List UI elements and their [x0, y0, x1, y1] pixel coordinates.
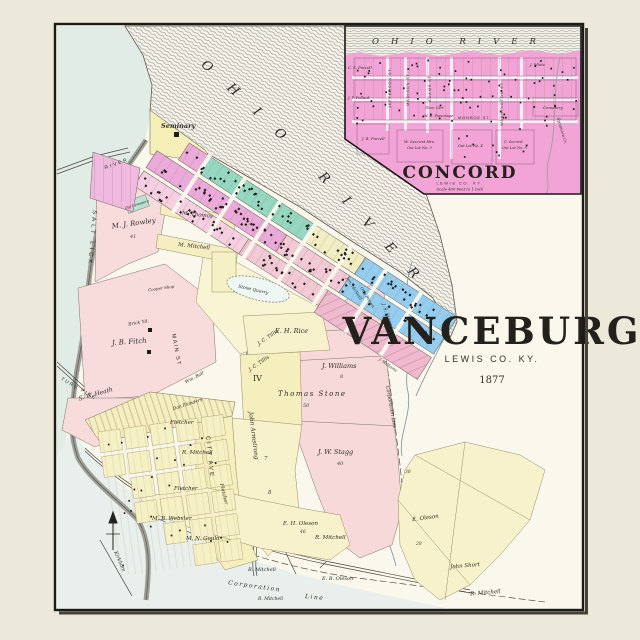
label-oleson-eb: E. B. Oleson — [321, 576, 353, 582]
map-title: VANCEBURG — [342, 309, 640, 353]
label-madison-st: MADISON ST. — [405, 72, 410, 106]
label-carr: Thos. Carr — [425, 106, 444, 110]
label-mitchell-r2: R. Mitchell — [314, 535, 346, 541]
label-outlot5: Out Lot No. 5 — [502, 146, 528, 150]
label-rice: E. H. Rice — [274, 327, 308, 335]
label-williams: J. Williams — [320, 362, 357, 370]
inset-subtitle: LEWIS CO. KY. — [436, 181, 483, 186]
label-fletcher1: Fletcher — [169, 420, 194, 426]
label-n50: 50 — [303, 403, 310, 409]
label-monroe-st: MONROE ST. — [458, 115, 491, 120]
seminary-building — [174, 132, 179, 137]
label-outlot3: Out Lot No. 3 — [407, 146, 433, 150]
label-outlot4: Out Lot No. 4 — [458, 144, 484, 148]
label-n40: 40 — [336, 461, 344, 467]
label-fletcher2: Fletcher — [173, 486, 198, 492]
label-n8b: 8 — [268, 490, 272, 496]
label-gould: M. N. Gould — [185, 536, 220, 542]
label-cemetery: Cemetery — [543, 105, 563, 110]
label-white: J. White — [529, 62, 546, 67]
label-jefferson-st: JEFFERSON ST. — [387, 67, 392, 108]
fitch-house — [147, 350, 151, 354]
inset-river-text: OHIO RIVER — [372, 37, 548, 47]
label-adams-st: ADAMS ST. — [427, 74, 432, 102]
label-oleson-eh: E. H. Oleson — [282, 521, 318, 527]
label-stone: Thomas Stone — [278, 390, 347, 398]
label-w-secrest: W. Secrest Hrs. — [404, 139, 435, 144]
label-n41: 41 — [129, 234, 136, 240]
label-n8: 8 — [340, 374, 343, 380]
label-c-secrest: C. Secrest — [504, 140, 523, 144]
label-n46: 46 — [299, 529, 306, 535]
brick-yard-mark — [148, 328, 152, 332]
label-n7: 7 — [264, 456, 268, 462]
label-n38: 38 — [405, 469, 411, 475]
vanceburg-map-svg: OHIO RIVER — [0, 0, 640, 640]
label-webster: M. B. Webster — [151, 516, 192, 522]
label-washington-st: WASHINGTON ST. — [499, 81, 504, 126]
label-section-iv: IV — [253, 374, 262, 383]
map-subtitle: LEWIS CO. KY. — [445, 354, 540, 364]
label-n28: 28 — [415, 541, 422, 547]
label-pollock: J. P. Pollock — [347, 95, 370, 100]
label-cs-purcell: C. S. Purcell — [348, 65, 372, 70]
label-jr-purcell: J. R. Purcell — [361, 136, 385, 141]
label-stagg: J. W. Stagg — [316, 448, 353, 456]
atlas-map-page: OHIO RIVER — [0, 0, 640, 640]
label-parsonage: M. E. Parsonage — [423, 114, 453, 118]
label-mitchell-r4: R. Mitchell — [257, 596, 284, 602]
inset-scale: Scale 400 Feet to 1 Inch — [437, 187, 484, 192]
label-seminary: Seminary — [161, 122, 197, 130]
label-mitchell-r3: R. Mitchell — [247, 567, 276, 573]
map-year: 1877 — [479, 375, 504, 386]
